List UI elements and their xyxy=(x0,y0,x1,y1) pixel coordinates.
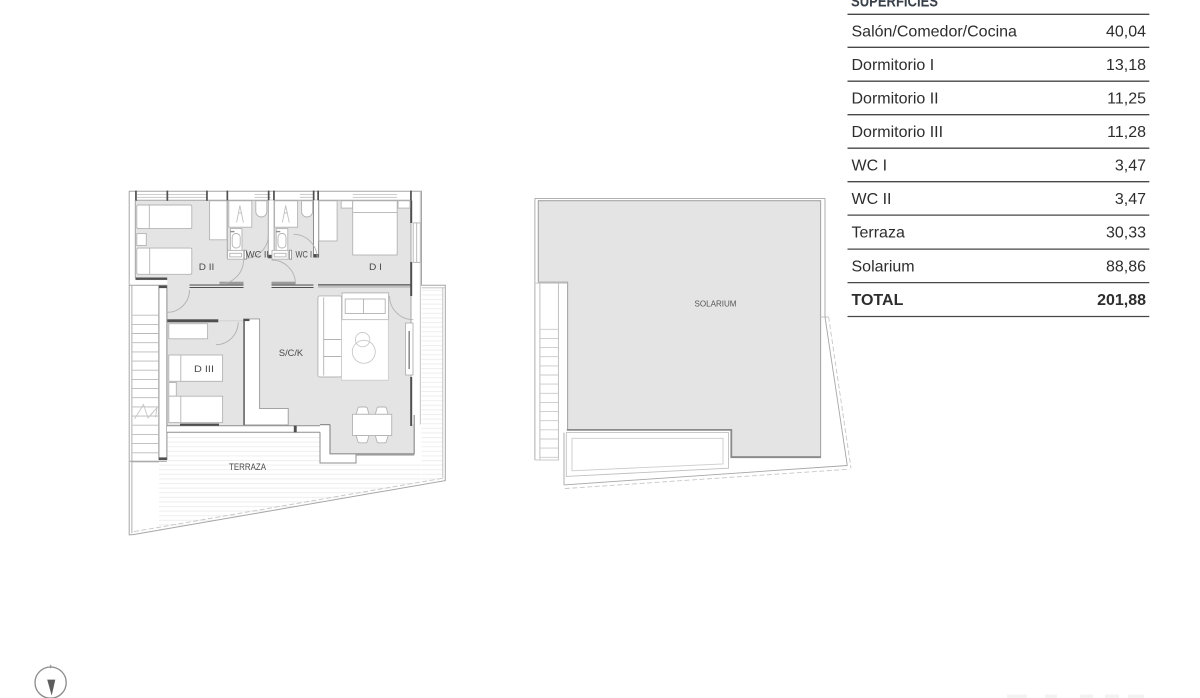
svg-text:WC II: WC II xyxy=(246,250,269,260)
svg-text:D III: D III xyxy=(194,364,214,374)
svg-text:Dormitorio II: Dormitorio II xyxy=(852,91,939,108)
svg-text:TERRAZA: TERRAZA xyxy=(229,462,266,472)
svg-text:3,47: 3,47 xyxy=(1115,158,1146,175)
svg-text:3,47: 3,47 xyxy=(1115,191,1146,208)
svg-text:WC II: WC II xyxy=(852,191,892,208)
svg-text:SOLARIUM: SOLARIUM xyxy=(695,298,737,308)
svg-text:40,04: 40,04 xyxy=(1106,23,1146,40)
svg-text:Salón/Comedor/Cocina: Salón/Comedor/Cocina xyxy=(852,23,1018,40)
svg-text:Terraza: Terraza xyxy=(852,225,905,242)
svg-text:88,86: 88,86 xyxy=(1106,259,1146,276)
svg-text:D II: D II xyxy=(199,262,215,272)
svg-text:Dormitorio I: Dormitorio I xyxy=(852,57,935,74)
svg-text:11,28: 11,28 xyxy=(1107,124,1146,141)
svg-text:30,33: 30,33 xyxy=(1106,225,1146,242)
svg-text:TOTAL: TOTAL xyxy=(852,292,904,309)
svg-text:WC I: WC I xyxy=(296,250,313,260)
svg-text:11,25: 11,25 xyxy=(1107,91,1146,108)
svg-text:13,18: 13,18 xyxy=(1106,57,1146,74)
svg-text:S/C/K: S/C/K xyxy=(279,348,303,358)
svg-text:Dormitorio III: Dormitorio III xyxy=(852,124,944,141)
svg-text:D I: D I xyxy=(369,262,382,272)
svg-text:WC I: WC I xyxy=(852,158,888,175)
svg-text:201,88: 201,88 xyxy=(1097,292,1146,309)
svg-text:Solarium: Solarium xyxy=(852,259,915,276)
svg-text:SUPERFICIES: SUPERFICIES xyxy=(851,0,938,11)
